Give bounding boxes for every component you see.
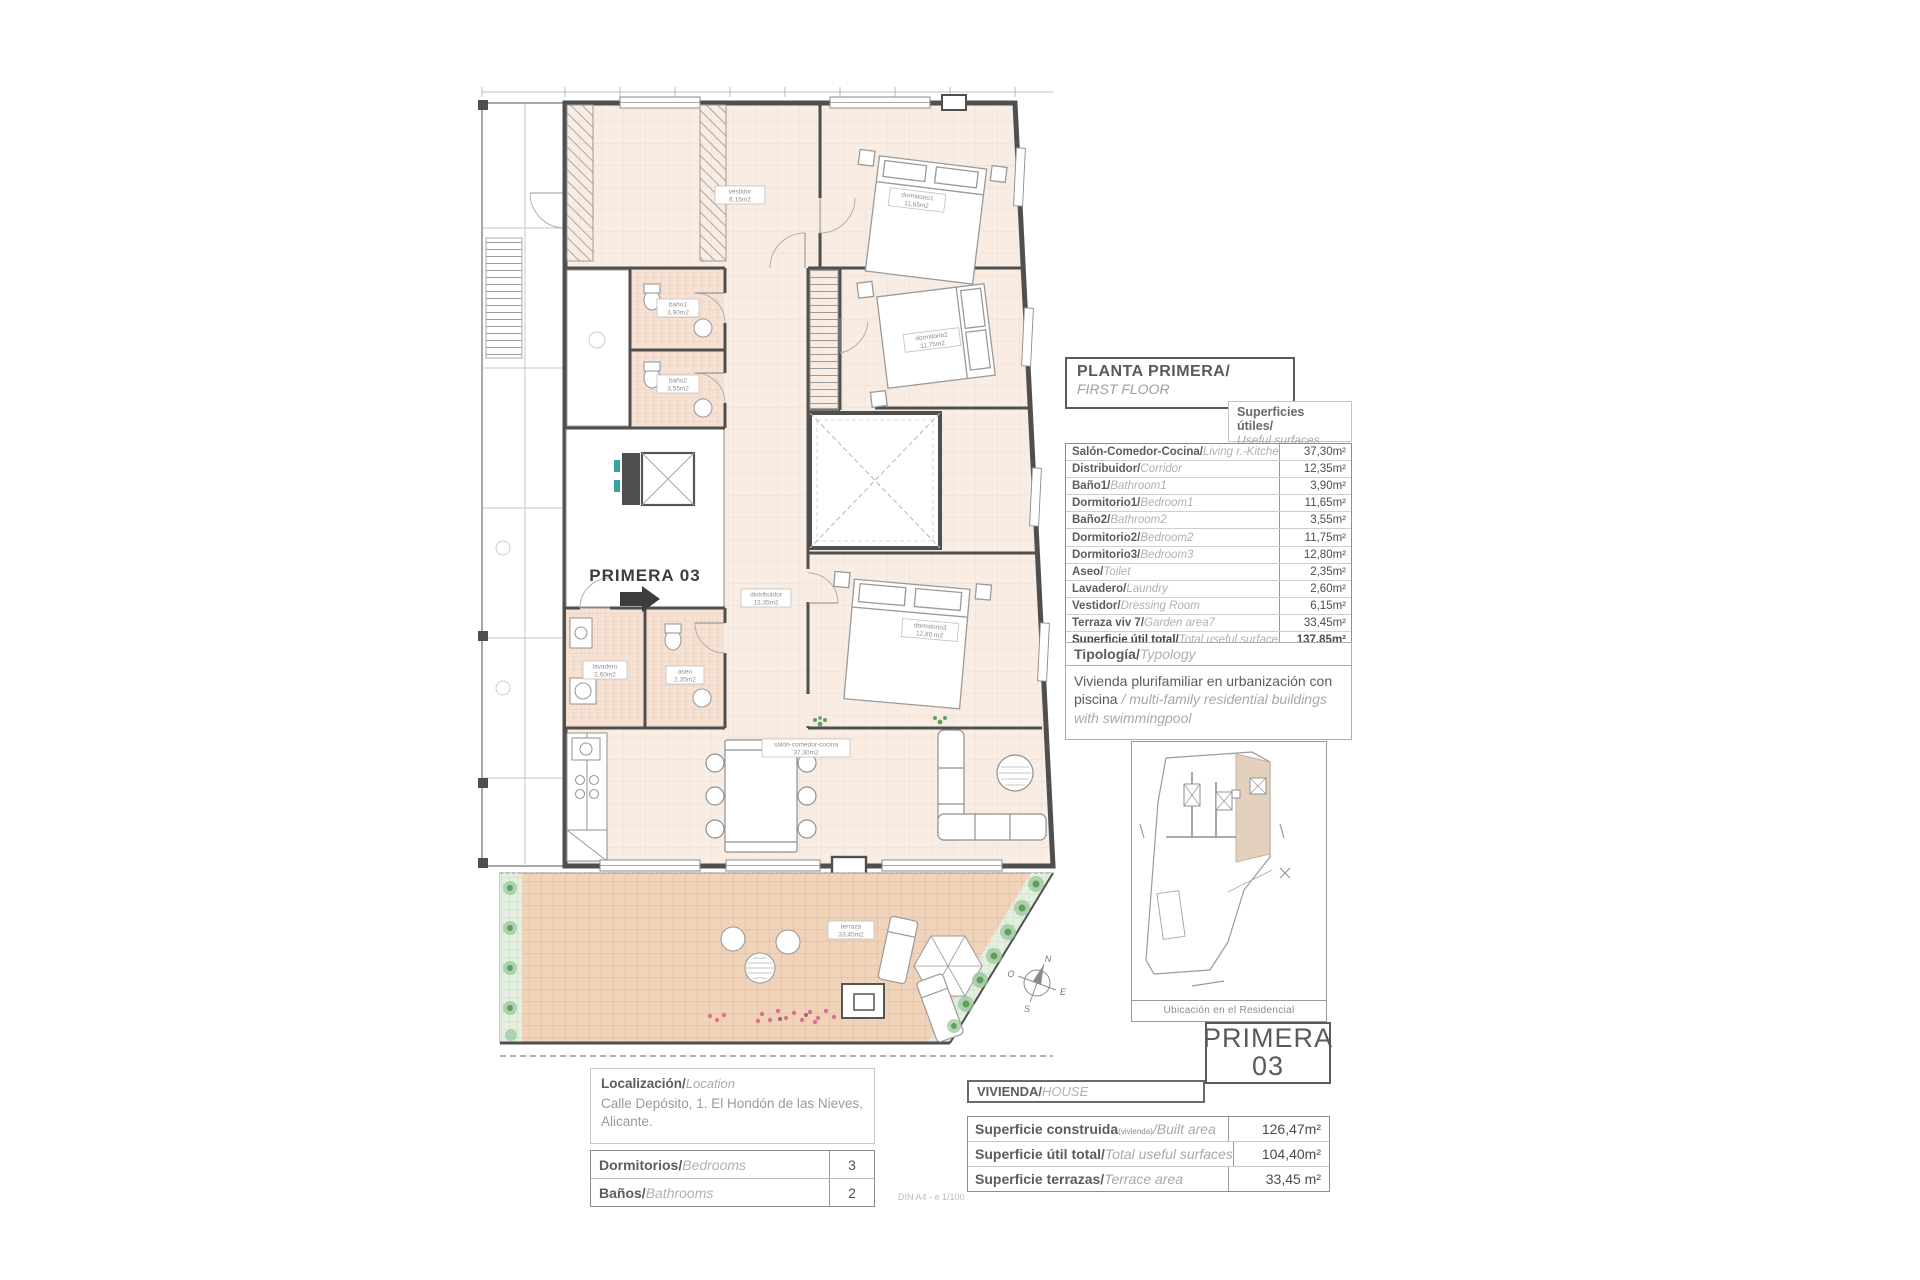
useful-total-value: 104,40m² [1233, 1142, 1329, 1166]
svg-text:6,15m2: 6,15m2 [729, 197, 751, 204]
kitchen-counter [567, 733, 607, 861]
surface-row: Lavadero/Laundry2,60m² [1066, 581, 1351, 598]
compass-labels: N E S O [1007, 954, 1067, 1014]
terrace-planter-box [842, 984, 884, 1018]
label-distribuidor: distribuidor12,35m2 [741, 589, 791, 607]
scale-note: DIN A4 - e 1/100 [898, 1192, 965, 1202]
floor-title: PLANTA PRIMERA/ [1077, 363, 1283, 381]
windows-bottom [600, 857, 1002, 875]
surface-row: Distribuidor/Corridor12,35m² [1066, 461, 1351, 478]
surface-row: Aseo/Toilet2,35m² [1066, 564, 1351, 581]
bathrooms-row: Baños/Bathrooms 2 [591, 1179, 874, 1206]
vivienda-heading: VIVIENDA/ [977, 1084, 1042, 1099]
built-area-row: Superficie construida(vivienda)/Built ar… [968, 1117, 1329, 1142]
plan-sheet: { "header": {"title": "PLANTA PRIMERA/",… [0, 0, 1920, 1280]
location-box: Localización/Location Calle Depósito, 1.… [590, 1068, 875, 1144]
svg-text:baño2: baño2 [669, 378, 687, 385]
svg-text:3,90m2: 3,90m2 [667, 310, 689, 317]
bathrooms-count: 2 [829, 1179, 874, 1206]
svg-text:vestidor: vestidor [729, 189, 753, 196]
location-address: Calle Depósito, 1. El Hondón de las Niev… [601, 1095, 864, 1131]
surface-row: Terraza viv 7/Garden area733,45m² [1066, 615, 1351, 632]
shaft-solid [622, 453, 640, 505]
surfaces-table: Salón-Comedor-Cocina/Living r.-Kitchen37… [1065, 443, 1352, 649]
terrace-area-row: Superficie terrazas/Terrace area 33,45 m… [968, 1167, 1329, 1191]
counts-table: Dormitorios/Bedrooms 3 Baños/Bathrooms 2 [590, 1150, 875, 1207]
useful-surfaces-caption-box: Superficies útiles/ Useful surfaces [1228, 401, 1352, 442]
stairwell-hatch [486, 238, 522, 358]
surface-row: Baño1/Bathroom13,90m² [1066, 478, 1351, 495]
svg-text:33,45m2: 33,45m2 [838, 932, 864, 939]
bedrooms-row: Dormitorios/Bedrooms 3 [591, 1151, 874, 1179]
label-banio1: baño13,90m2 [657, 299, 699, 317]
planter-left [500, 873, 522, 1043]
vivienda-heading-box: VIVIENDA/HOUSE [967, 1080, 1205, 1103]
compass-s: S [1024, 1004, 1030, 1014]
location-heading: Localización/ [601, 1076, 686, 1091]
label-terraza: terraza33,45m2 [828, 921, 874, 939]
svg-text:37,30m2: 37,30m2 [793, 750, 819, 757]
surface-row: Baño2/Bathroom23,55m² [1066, 512, 1351, 529]
svg-text:12,35m2: 12,35m2 [753, 600, 779, 607]
label-banio2: baño23,55m2 [657, 375, 699, 393]
surface-row: Dormitorio3/Bedroom312,80m² [1066, 547, 1351, 564]
surface-row: Vestidor/Dressing Room6,15m² [1066, 598, 1351, 615]
terrace-area-value: 33,45 m² [1228, 1167, 1329, 1191]
label-salon: salón-comedor-cocina37,30m2 [762, 739, 850, 757]
site-map [1132, 742, 1326, 1000]
svg-text:2,35m2: 2,35m2 [674, 677, 696, 684]
dimension-ticks [482, 87, 1053, 97]
label-aseo: aseo2,35m2 [666, 666, 704, 684]
useful-total-row: Superficie útil total/Total useful surfa… [968, 1142, 1329, 1167]
typology-text: Vivienda plurifamiliar en urbanización c… [1066, 666, 1351, 739]
vivienda-table: Superficie construida(vivienda)/Built ar… [967, 1116, 1330, 1192]
unit-badge-name: PRIMERA [1203, 1025, 1333, 1053]
svg-text:2,60m2: 2,60m2 [594, 672, 616, 679]
typology-heading: Tipología/Typology [1066, 643, 1351, 666]
svg-text:baño1: baño1 [669, 302, 687, 309]
building-common-area [478, 100, 565, 868]
highlighted-unit [1236, 754, 1270, 862]
surface-row: Dormitorio2/Bedroom211,75m² [1066, 529, 1351, 546]
svg-text:terraza: terraza [841, 924, 862, 931]
floor-plan: N E S O PRIMERA 03 vestidor6,15m2 dormit… [470, 78, 1090, 1068]
lightwell [810, 413, 940, 548]
surface-row: Salón-Comedor-Cocina/Living r.-Kitchen37… [1066, 444, 1351, 461]
bedrooms-count: 3 [829, 1151, 874, 1178]
unit-badge: PRIMERA 03 [1205, 1022, 1331, 1084]
surface-row: Dormitorio1/Bedroom111,65m² [1066, 495, 1351, 512]
stairs-hatch [810, 270, 838, 410]
label-lavadero: lavadero2,60m2 [583, 661, 627, 679]
site-map-caption: Ubicación en el Residencial [1132, 1000, 1326, 1021]
plan-unit-label: PRIMERA 03 [589, 566, 700, 585]
floor-title-en: FIRST FLOOR [1077, 381, 1283, 397]
compass-icon [1018, 964, 1056, 1002]
svg-text:lavadero: lavadero [593, 664, 618, 671]
label-vestidor: vestidor6,15m2 [715, 186, 765, 204]
svg-text:aseo: aseo [678, 669, 692, 676]
svg-text:distribuidor: distribuidor [750, 592, 783, 599]
built-area-value: 126,47m² [1228, 1117, 1329, 1141]
typology-box: Tipología/Typology Vivienda plurifamilia… [1065, 642, 1352, 740]
useful-surfaces-caption: Superficies útiles/ [1237, 405, 1343, 433]
svg-text:3,55m2: 3,55m2 [667, 386, 689, 393]
compass-n: N [1045, 954, 1052, 964]
compass-e: E [1060, 987, 1067, 997]
svg-text:salón-comedor-cocina: salón-comedor-cocina [774, 742, 838, 749]
site-map-box: Ubicación en el Residencial [1131, 741, 1327, 1022]
compass-w: O [1007, 969, 1014, 979]
unit-badge-number: 03 [1252, 1053, 1284, 1081]
